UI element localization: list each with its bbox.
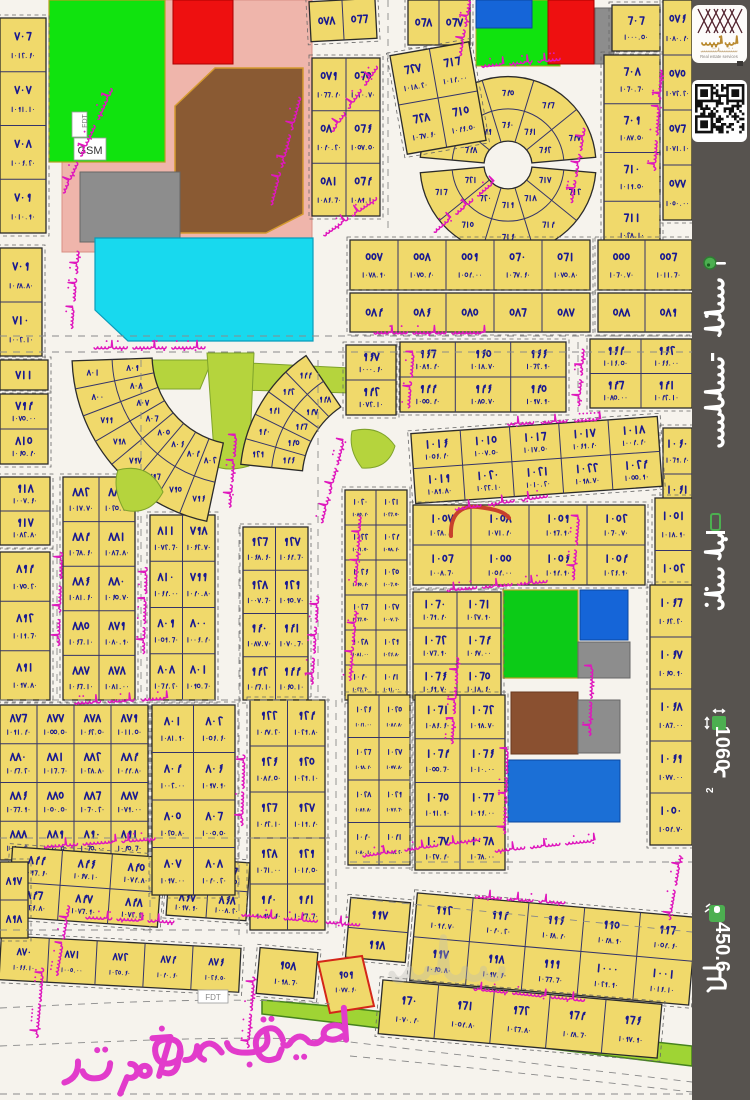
svg-text:FDT: FDT (82, 113, 89, 127)
svg-text:2: 2 (705, 787, 716, 793)
svg-text:Real estate services: Real estate services (700, 54, 738, 59)
svg-text:FDT: FDT (205, 993, 221, 1002)
svg-text:450.6: 450.6 (711, 922, 733, 972)
svg-text:1060: 1060 (711, 726, 733, 771)
